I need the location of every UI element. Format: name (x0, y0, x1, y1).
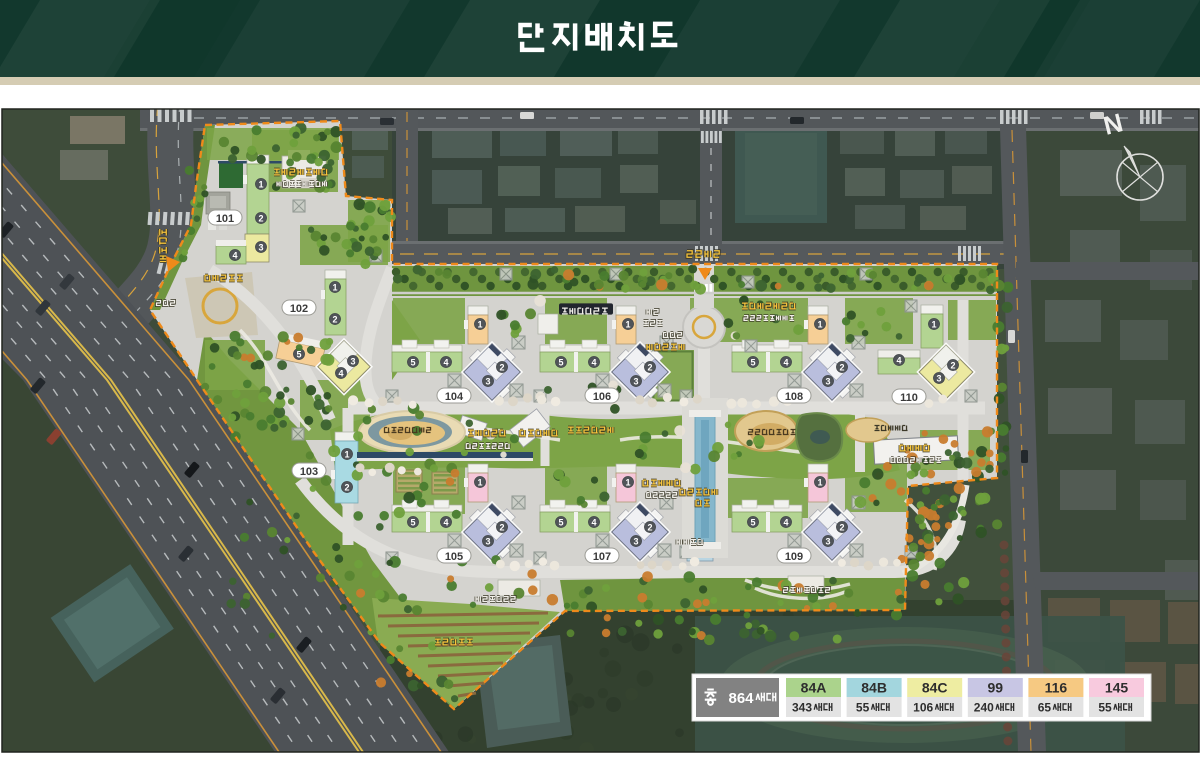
svg-text:240: 240 (974, 701, 994, 715)
svg-text:1: 1 (344, 450, 349, 460)
svg-text:5: 5 (410, 358, 415, 368)
svg-text:106: 106 (913, 701, 933, 715)
svg-text:4: 4 (591, 518, 596, 528)
svg-text:105: 105 (445, 551, 463, 563)
svg-text:4: 4 (896, 356, 901, 366)
svg-text:1: 1 (817, 478, 822, 488)
svg-text:108: 108 (785, 391, 803, 403)
svg-text:2: 2 (499, 363, 504, 373)
svg-text:864: 864 (728, 690, 754, 707)
svg-text:65: 65 (1038, 701, 1052, 715)
svg-text:1: 1 (931, 320, 936, 330)
svg-text:1: 1 (332, 283, 337, 293)
svg-text:2: 2 (647, 523, 652, 533)
svg-text:2: 2 (499, 523, 504, 533)
svg-text:343: 343 (792, 701, 812, 715)
svg-text:102: 102 (290, 303, 308, 315)
svg-text:99: 99 (988, 680, 1004, 696)
svg-text:4: 4 (783, 518, 788, 528)
svg-text:3: 3 (825, 377, 830, 387)
svg-text:1: 1 (477, 320, 482, 330)
svg-text:5: 5 (750, 518, 755, 528)
svg-text:5: 5 (558, 518, 563, 528)
svg-text:3: 3 (633, 537, 638, 547)
svg-text:1: 1 (625, 320, 630, 330)
svg-text:107: 107 (593, 551, 611, 563)
svg-text:84A: 84A (801, 680, 827, 696)
svg-text:1: 1 (258, 180, 263, 190)
svg-text:5: 5 (296, 350, 301, 360)
svg-text:2: 2 (647, 363, 652, 373)
svg-text:5: 5 (750, 358, 755, 368)
svg-text:5: 5 (410, 518, 415, 528)
svg-text:55: 55 (856, 701, 870, 715)
svg-text:106: 106 (593, 391, 611, 403)
svg-text:3: 3 (485, 377, 490, 387)
svg-text:4: 4 (443, 358, 448, 368)
svg-text:4: 4 (443, 518, 448, 528)
svg-text:84C: 84C (922, 680, 948, 696)
svg-text:101: 101 (216, 213, 234, 225)
svg-text:2: 2 (950, 361, 955, 371)
svg-text:55: 55 (1098, 701, 1112, 715)
svg-text:3: 3 (485, 537, 490, 547)
svg-text:109: 109 (785, 551, 803, 563)
svg-text:84B: 84B (861, 680, 887, 696)
svg-text:2: 2 (258, 214, 263, 224)
svg-text:3: 3 (825, 537, 830, 547)
svg-text:3: 3 (350, 357, 355, 367)
svg-text:2: 2 (344, 483, 349, 493)
svg-text:4: 4 (338, 369, 343, 379)
svg-text:3: 3 (258, 243, 263, 253)
svg-text:4: 4 (783, 358, 788, 368)
svg-text:1: 1 (817, 320, 822, 330)
svg-text:104: 104 (445, 391, 464, 403)
svg-text:1: 1 (477, 478, 482, 488)
svg-text:3: 3 (633, 377, 638, 387)
svg-text:4: 4 (232, 251, 237, 261)
svg-text:103: 103 (300, 466, 318, 478)
svg-text:116: 116 (1045, 680, 1068, 696)
svg-text:145: 145 (1105, 680, 1129, 696)
svg-text:4: 4 (591, 358, 596, 368)
svg-text:2: 2 (839, 523, 844, 533)
svg-text:3: 3 (936, 374, 941, 384)
svg-text:2: 2 (332, 315, 337, 325)
svg-text:110: 110 (900, 392, 918, 404)
svg-text:1: 1 (625, 478, 630, 488)
svg-text:2: 2 (839, 363, 844, 373)
svg-text:5: 5 (558, 358, 563, 368)
